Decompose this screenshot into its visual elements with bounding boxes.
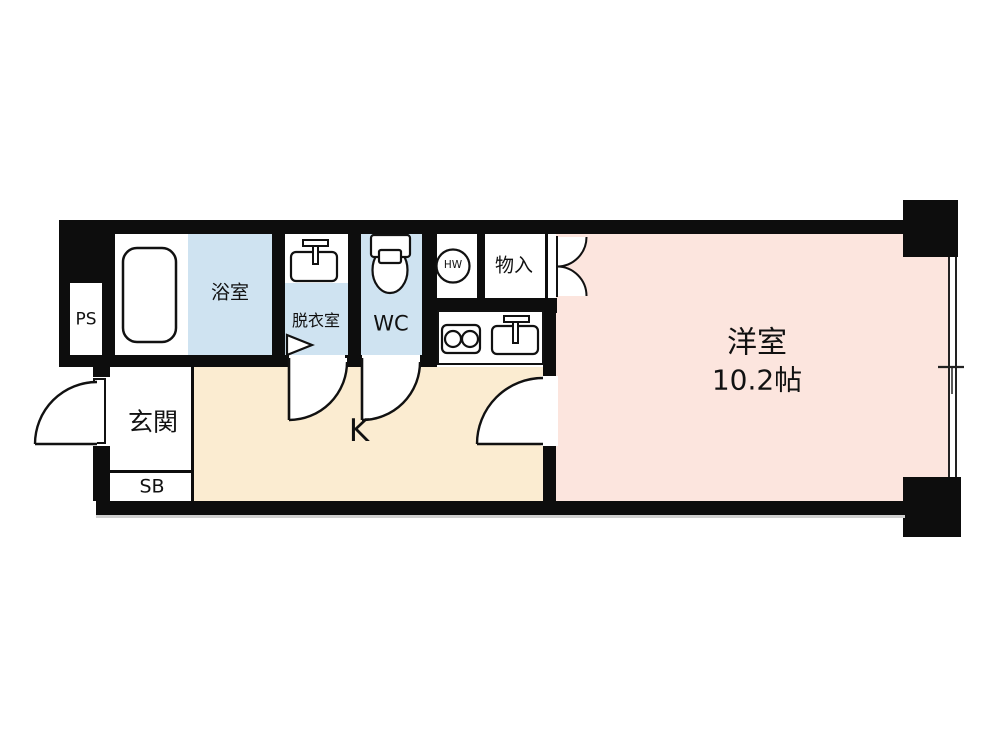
dressing-label: 脱衣室 xyxy=(292,312,340,330)
entrance-door-arc xyxy=(35,382,97,444)
wc-label: WC xyxy=(373,312,408,335)
laundry-marker-icon xyxy=(287,335,312,355)
entrance-label: 玄関 xyxy=(128,408,178,436)
kitchen-label: K xyxy=(349,414,369,448)
storage-double-door-arcs xyxy=(557,236,587,297)
wc-door-arc xyxy=(362,358,420,420)
toilet-icon xyxy=(371,235,410,293)
floor-plan: PS 浴室 脱衣室 WC HW 物入 洋室 10.2帖 玄関 SB K xyxy=(0,0,1000,733)
storage-label: 物入 xyxy=(495,256,533,277)
kitchen-door-arc xyxy=(477,378,543,444)
sink-icon xyxy=(492,316,538,354)
bathtub-icon xyxy=(123,248,176,342)
plan-symbols-layer xyxy=(0,0,1000,733)
stove-icon xyxy=(442,325,480,353)
ps-label: PS xyxy=(75,311,96,330)
western-label: 洋室 xyxy=(727,327,787,360)
washbasin-icon xyxy=(291,240,337,281)
window-right xyxy=(938,257,964,477)
dressing-door-arc xyxy=(289,358,347,420)
water-heater-label: HW xyxy=(444,260,462,272)
shoe-box-label: SB xyxy=(139,477,164,498)
western-size-label: 10.2帖 xyxy=(712,366,802,397)
bath-label: 浴室 xyxy=(211,283,249,304)
